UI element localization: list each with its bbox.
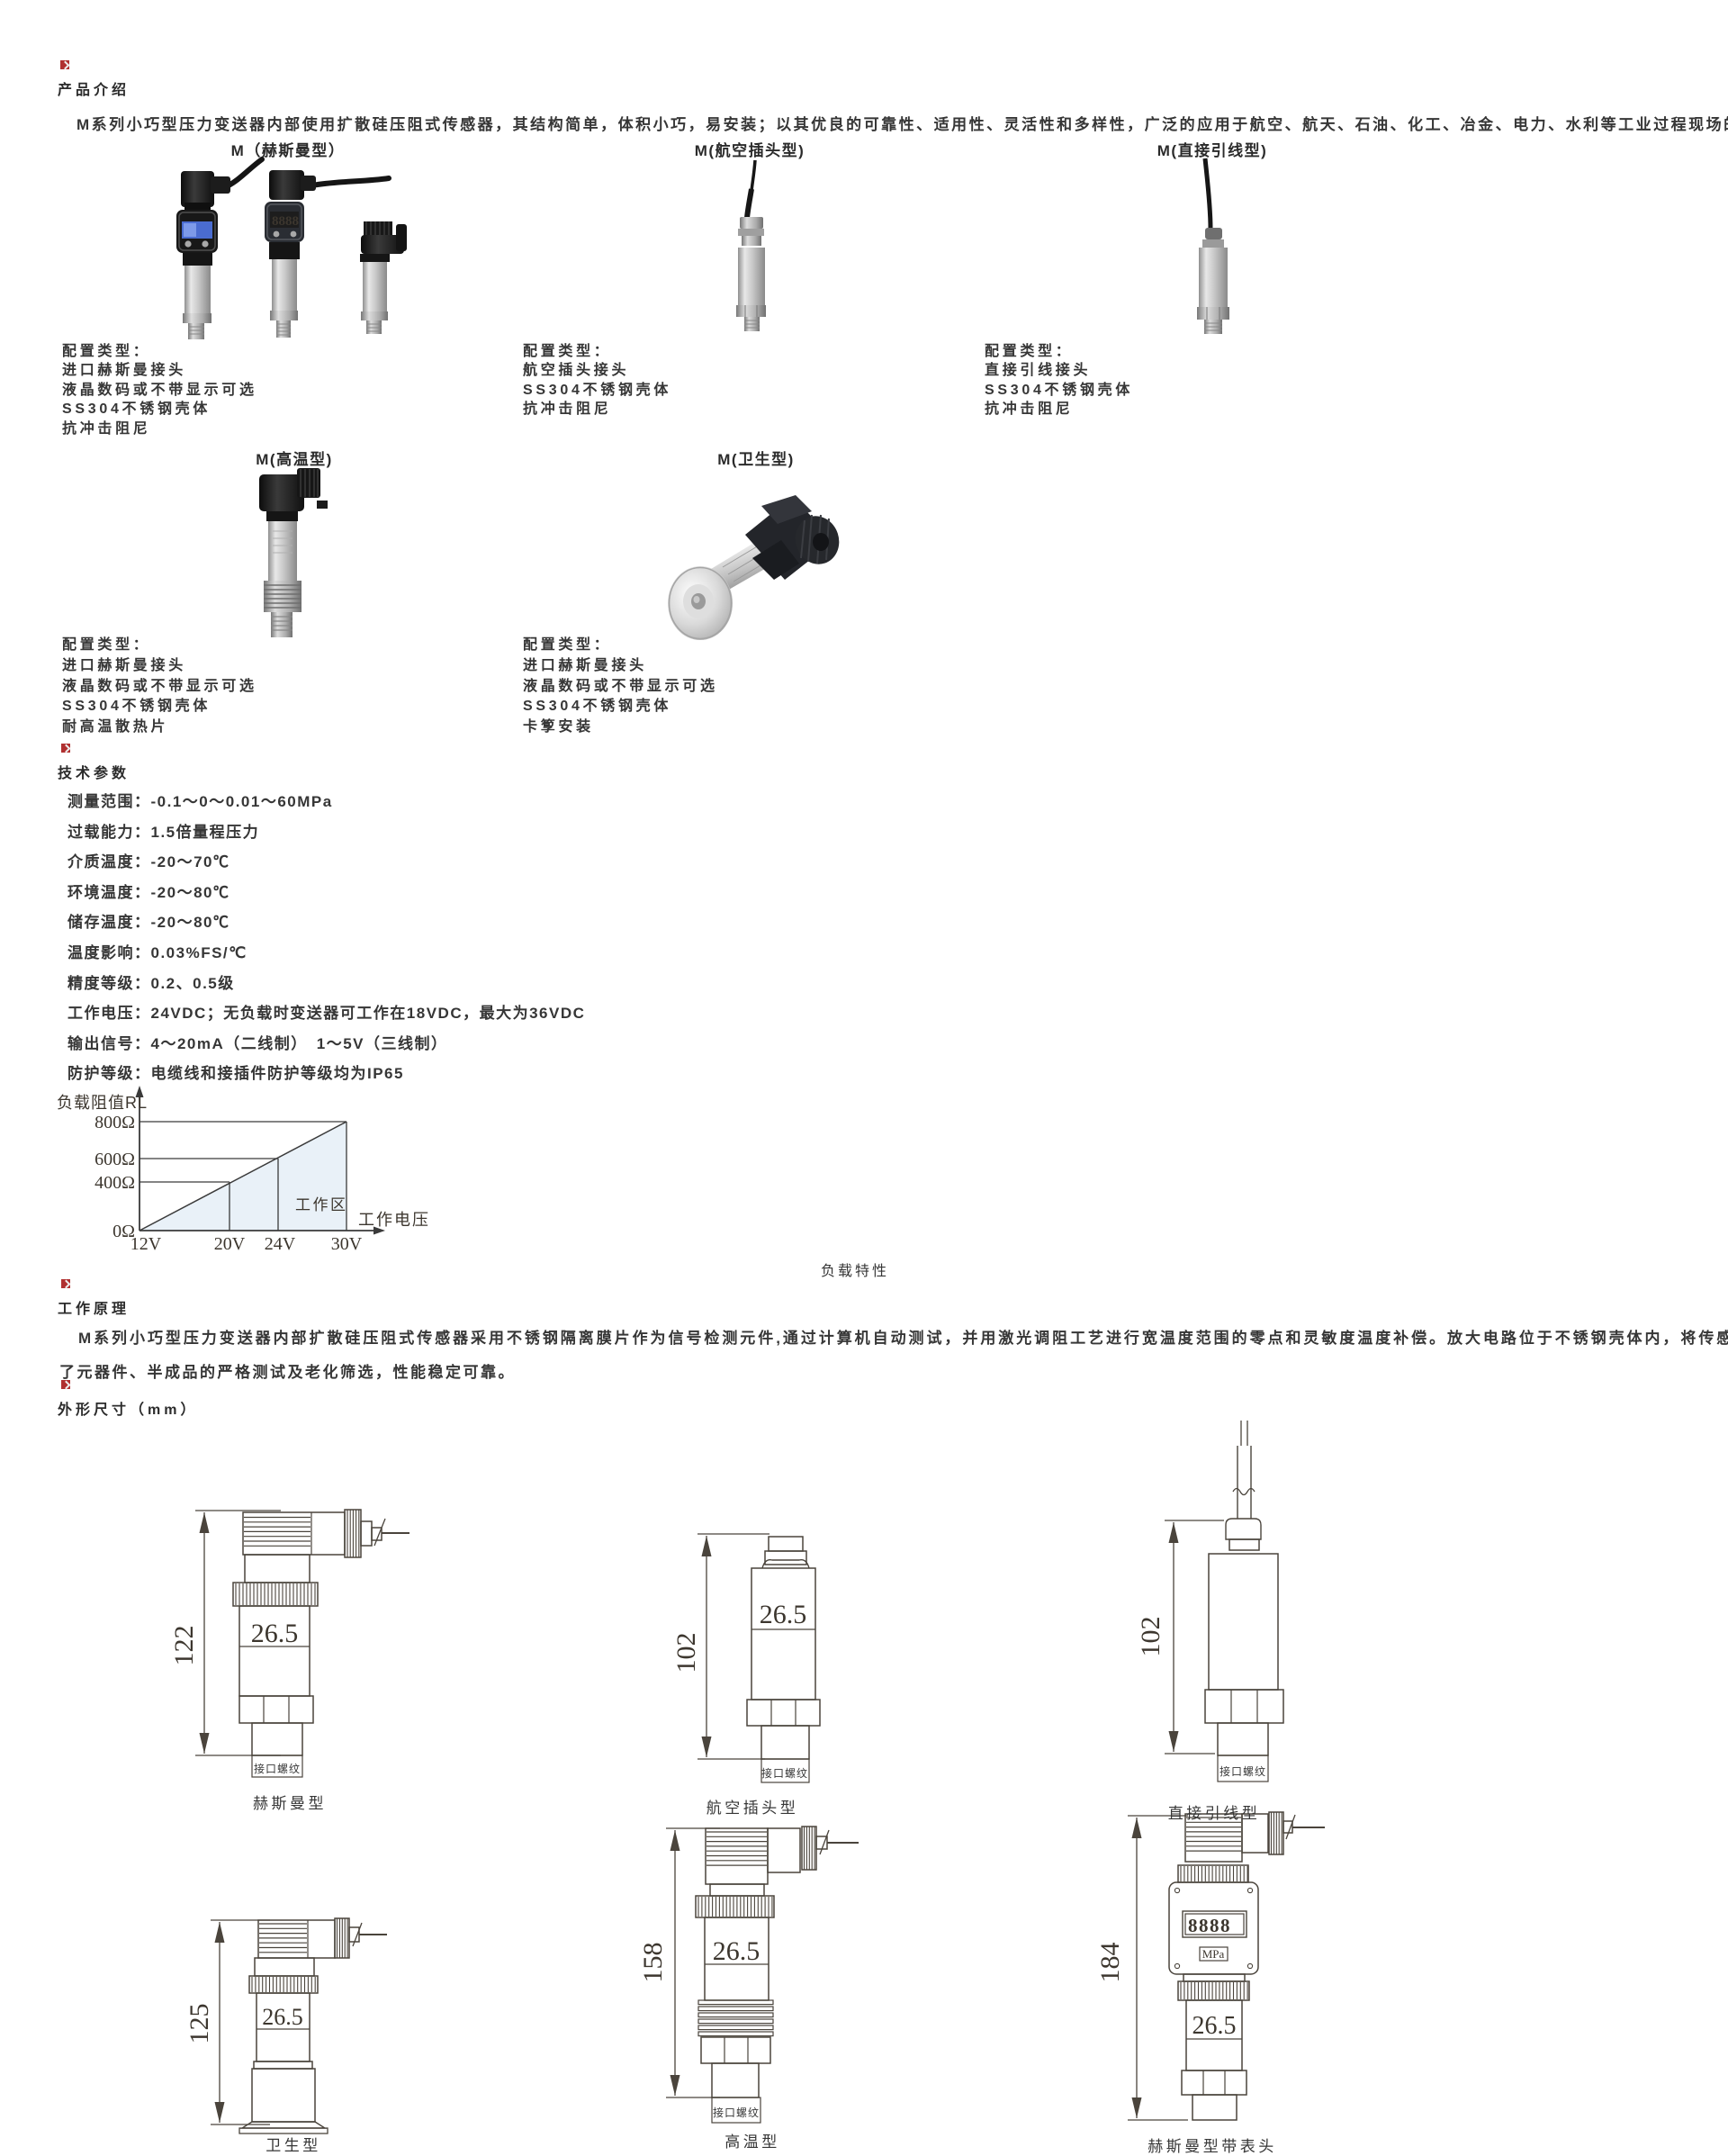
svg-text:400Ω: 400Ω [94, 1173, 135, 1193]
svg-text:800Ω: 800Ω [94, 1113, 135, 1132]
svg-text:26.5: 26.5 [760, 1600, 807, 1629]
svg-text:26.5: 26.5 [1192, 2012, 1237, 2040]
svg-text:20V: 20V [214, 1234, 246, 1254]
svg-text:125: 125 [184, 2004, 214, 2044]
svg-text:12V: 12V [130, 1234, 162, 1254]
svg-text:26.5: 26.5 [251, 1619, 299, 1648]
svg-text:102: 102 [671, 1633, 701, 1673]
svg-text:24V: 24V [265, 1234, 296, 1254]
svg-text:26.5: 26.5 [262, 2004, 303, 2030]
svg-text:122: 122 [169, 1626, 199, 1666]
svg-text:MPa: MPa [1202, 1947, 1225, 1961]
svg-text:600Ω: 600Ω [94, 1150, 135, 1169]
svg-text:102: 102 [1136, 1617, 1165, 1657]
svg-text:8888: 8888 [272, 214, 299, 229]
svg-text:184: 184 [1095, 1943, 1125, 1983]
svg-text:26.5: 26.5 [713, 1936, 760, 1966]
svg-text:158: 158 [638, 1943, 668, 1983]
svg-text:30V: 30V [331, 1234, 363, 1254]
svg-text:8888: 8888 [1188, 1915, 1231, 1936]
